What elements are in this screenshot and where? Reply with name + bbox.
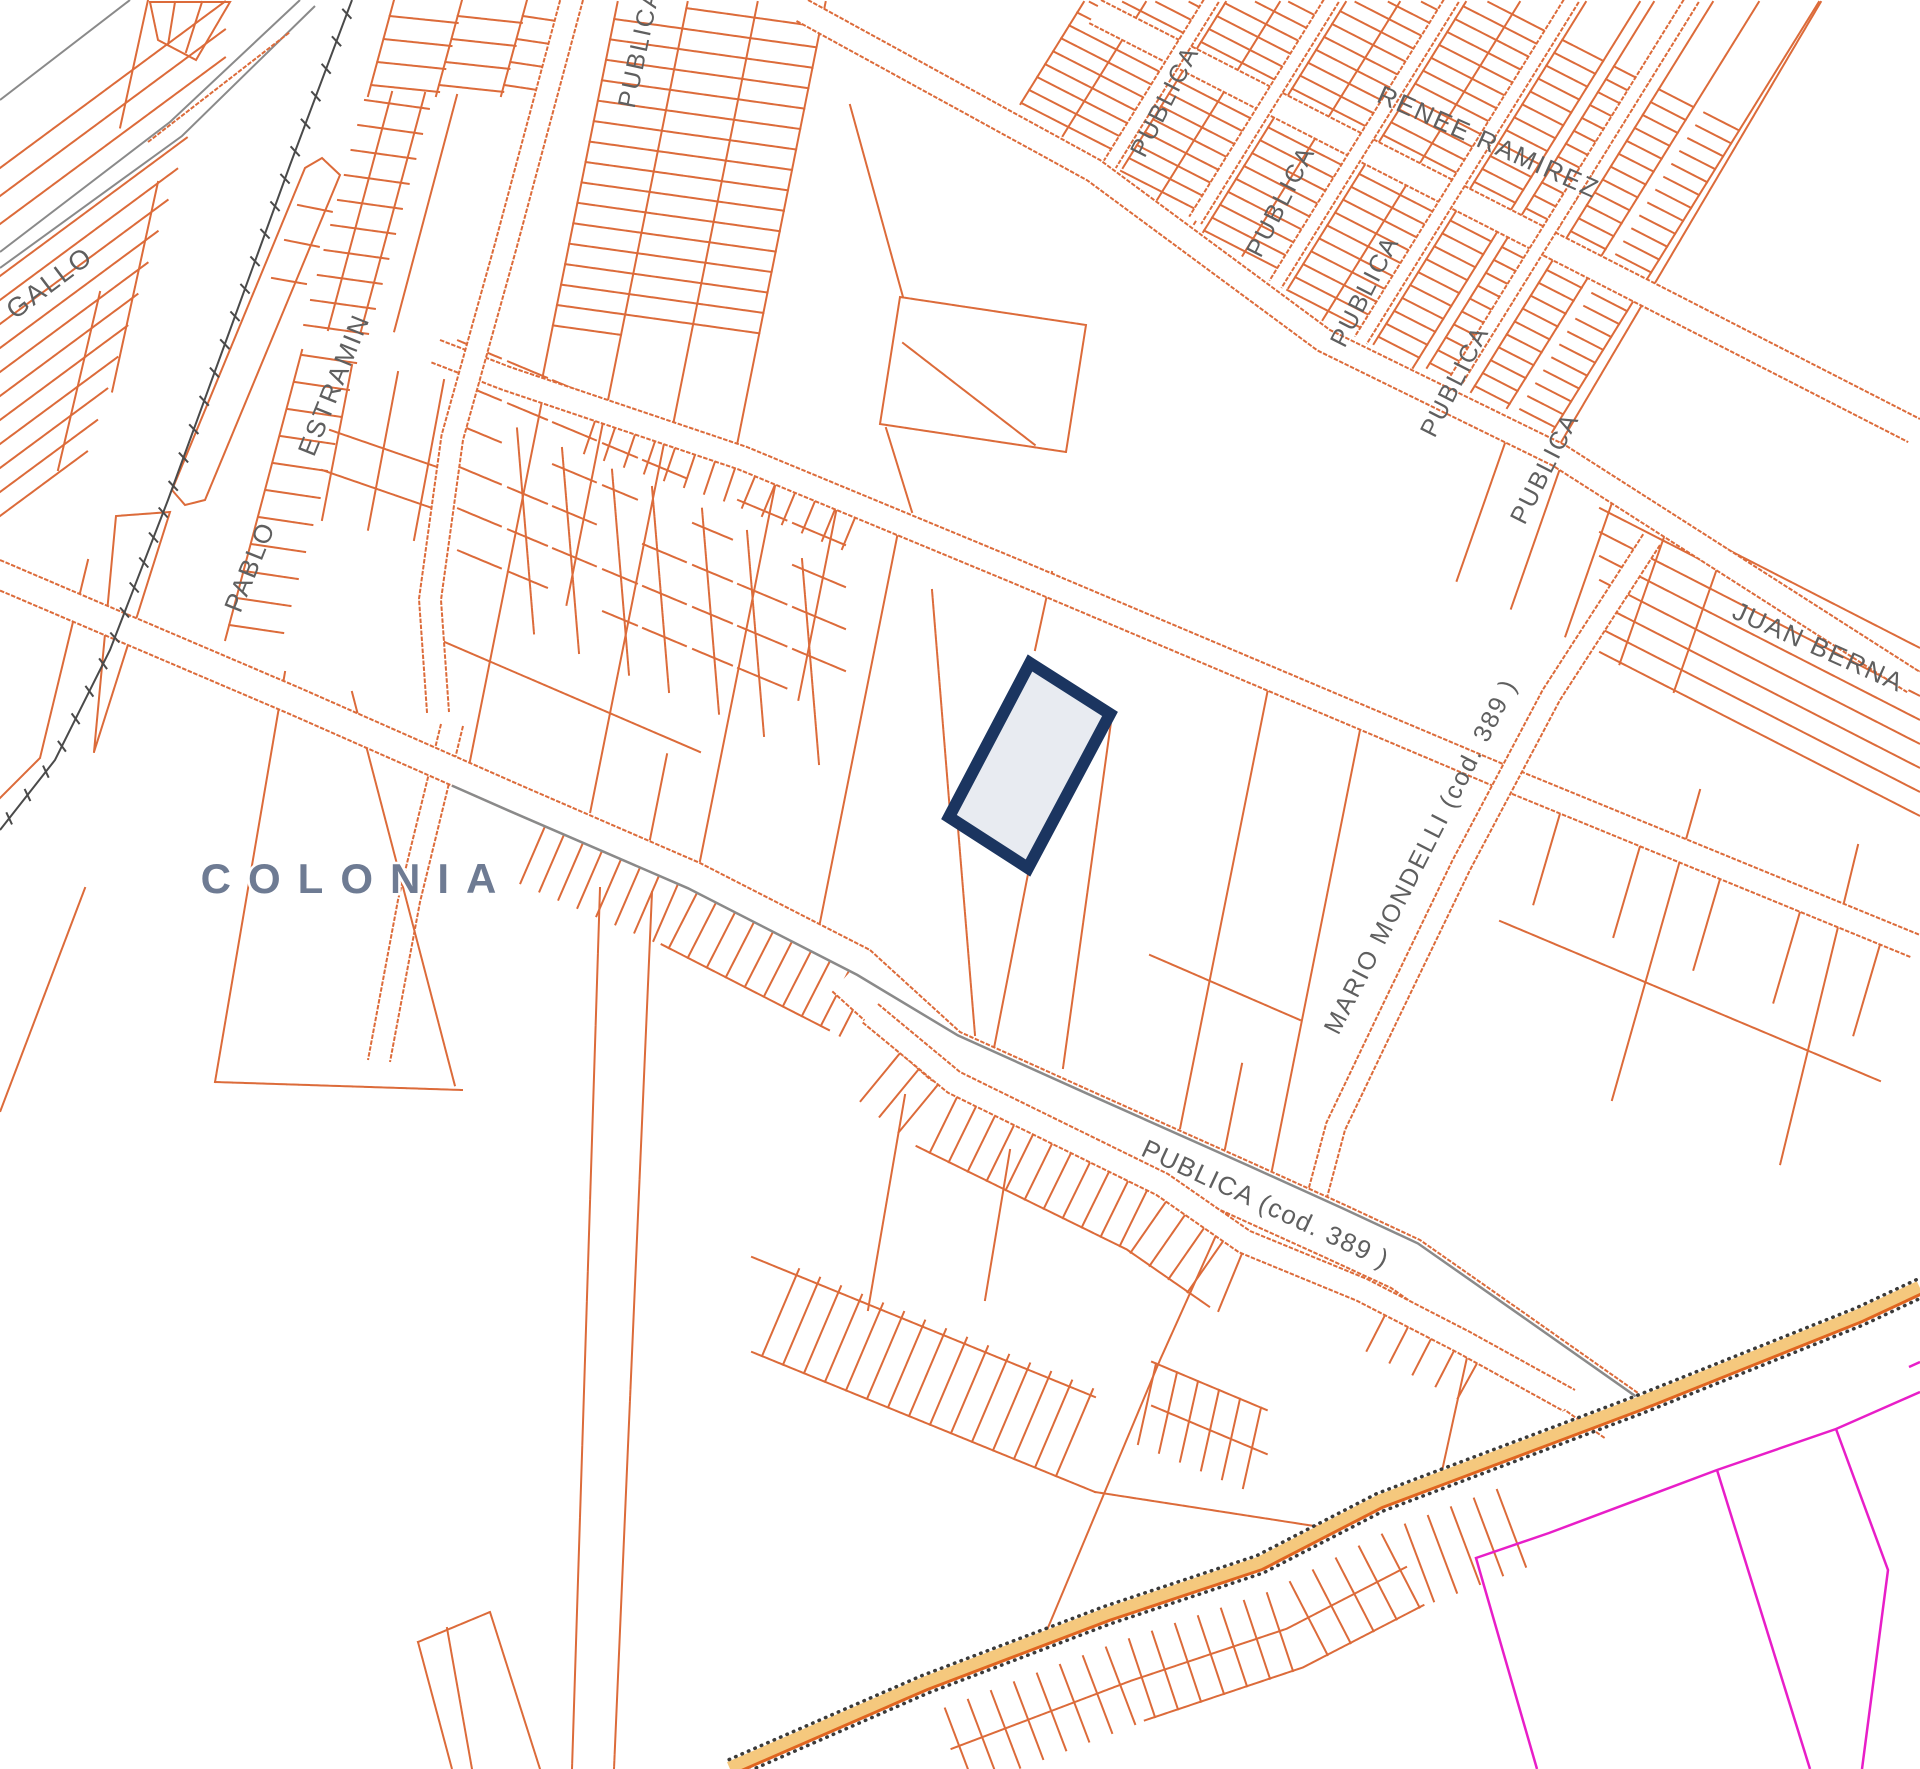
svg-text:COLONIA: COLONIA [201,855,514,902]
